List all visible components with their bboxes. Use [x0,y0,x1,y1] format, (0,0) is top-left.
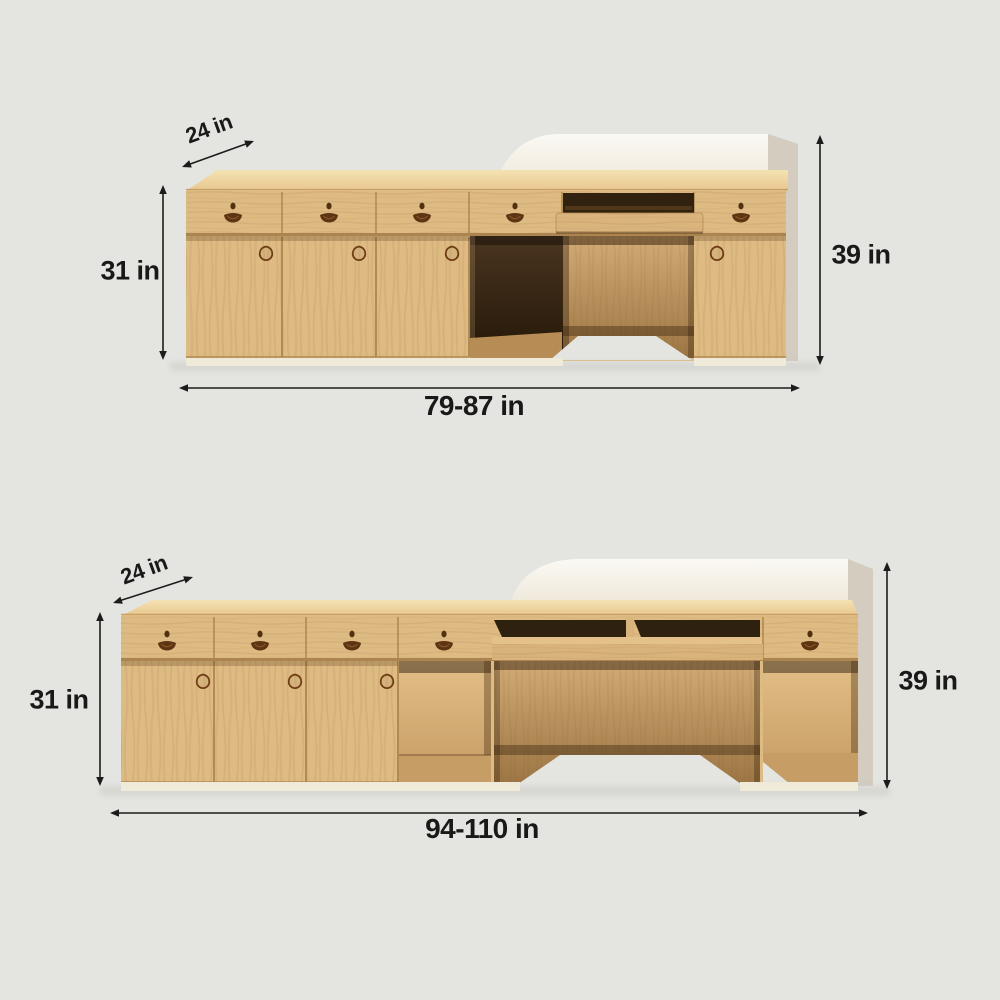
open-cubby [470,236,563,358]
desk-illustrations-canvas [0,0,1000,1000]
bottom-desk-total-height-label: 39 in [898,668,957,695]
kneehole [550,236,694,360]
bottom-desk [100,559,890,796]
desk-top-surface [186,170,788,191]
open-cubby [399,661,491,783]
base-strip-left [121,782,520,791]
base-strip-left [186,358,563,366]
desk-top-surface [121,600,858,616]
bottom-desk-width-label: 94-110 in [425,815,539,843]
right-door-grain [694,236,786,358]
top-desk [170,134,820,371]
keyboard-tray [556,193,703,234]
cabinet-height-arrow [96,612,104,786]
kneehole [494,661,760,784]
total-height-arrow [816,135,824,365]
total-height-arrow [883,562,891,789]
privacy-panel [510,559,848,604]
base-strip-right [694,358,786,366]
door-grain [121,661,398,783]
furniture-dimension-diagram: 24 in 31 in 39 in 79-87 in 24 in 31 in 3… [0,0,1000,1000]
door-top-shadow [121,661,398,666]
cabinet-height-arrow [159,185,167,360]
right-door-top-shadow [694,236,786,241]
door-grain [186,236,470,358]
keyboard-trays [492,618,763,660]
top-desk-width-label: 79-87 in [424,392,524,420]
bottom-desk-cabinet-height-label: 31 in [29,687,88,714]
right-open-cubby [763,661,858,784]
top-desk-total-height-label: 39 in [831,242,890,269]
door-top-shadow [186,236,470,241]
base-strip-right [740,782,858,791]
top-desk-cabinet-height-label: 31 in [100,258,159,285]
